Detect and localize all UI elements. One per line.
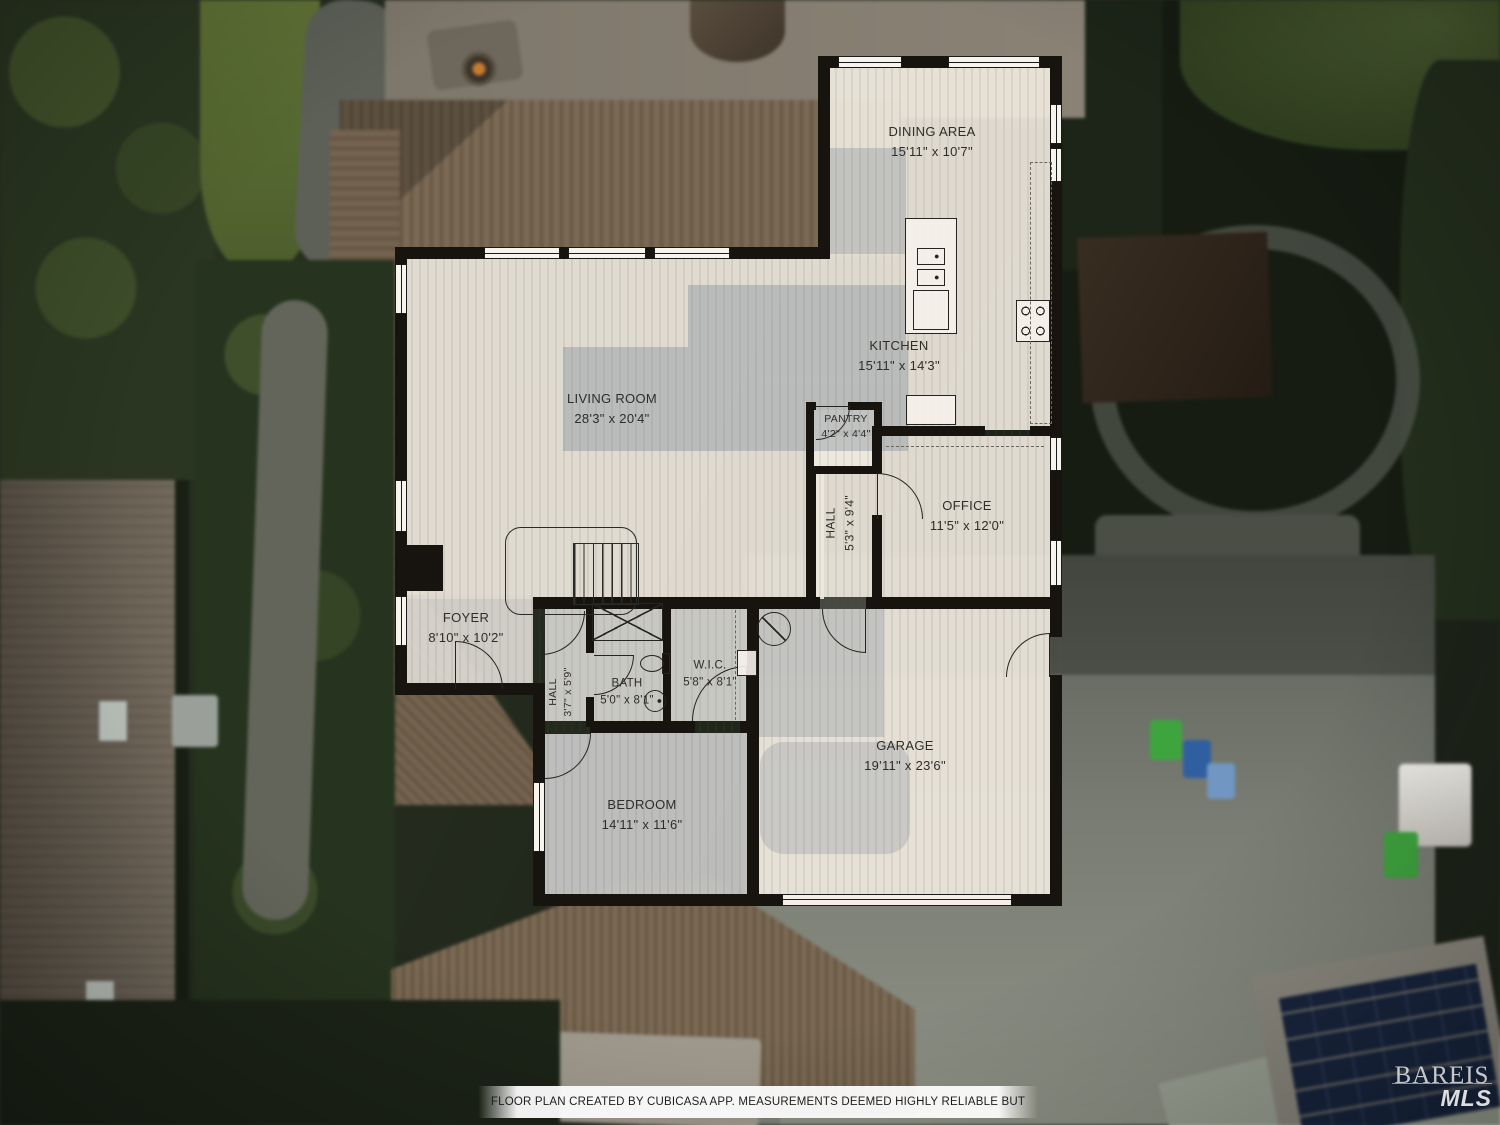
bareis-mls-watermark: BAREIS MLS <box>1392 1062 1492 1112</box>
room-dims: 5'3" x 9'4" <box>840 495 859 551</box>
wall <box>872 426 985 436</box>
wall <box>407 545 443 591</box>
window <box>395 480 407 532</box>
wall <box>806 470 816 609</box>
room-name: HALL <box>823 507 837 538</box>
disclaimer-bar: FLOOR PLAN CREATED BY CUBICASA APP. MEAS… <box>478 1086 1038 1118</box>
cabinet-dashed-line <box>1030 162 1052 424</box>
room-name: PANTRY <box>824 413 867 425</box>
shadow-dining-table <box>826 148 906 254</box>
room-name: W.I.C. <box>693 659 726 671</box>
room-name: GARAGE <box>876 738 933 753</box>
room-dims: 5'0" x 8'1" <box>600 692 654 709</box>
wall <box>586 697 594 727</box>
room-label-bedroom: BEDROOM14'11" x 11'6" <box>602 795 683 835</box>
aerial-floor-plan-image: DINING AREA15'11" x 10'7" KITCHEN15'11" … <box>0 0 1500 1125</box>
room-dims: 4'2" x 4'4" <box>821 427 870 442</box>
room-dims: 19'11" x 23'6" <box>864 756 946 776</box>
room-name: KITCHEN <box>869 338 928 353</box>
window <box>654 247 730 259</box>
window <box>1050 437 1062 471</box>
floor-plan-overlay: DINING AREA15'11" x 10'7" KITCHEN15'11" … <box>0 0 1500 1125</box>
wall <box>806 402 814 474</box>
room-label-hall: HALL5'3" x 9'4" <box>821 495 858 551</box>
room-label-living-room: LIVING ROOM28'3" x 20'4" <box>567 389 657 429</box>
island-dishwasher <box>913 290 949 330</box>
room-label-office: OFFICE11'5" x 12'0" <box>930 496 1004 536</box>
room-label-bath: BATH5'0" x 8'1" <box>600 675 654 708</box>
wall <box>590 721 695 733</box>
wall <box>533 721 545 733</box>
window <box>484 247 560 259</box>
room-dims: 15'11" x 10'7" <box>888 142 975 162</box>
room-dims: 28'3" x 20'4" <box>567 409 657 429</box>
room-label-pantry: PANTRY4'2" x 4'4" <box>821 412 870 442</box>
window <box>395 596 407 646</box>
toilet-tank <box>662 653 670 674</box>
wall <box>1050 675 1062 906</box>
wall <box>874 402 882 426</box>
room-dims: 11'5" x 12'0" <box>930 516 1004 536</box>
wall <box>866 597 1062 609</box>
garage-door <box>782 894 1012 906</box>
island-sink-2 <box>917 269 945 286</box>
window <box>838 56 902 68</box>
wall <box>872 515 882 609</box>
room-dims: 3'7" x 5'9" <box>561 667 576 716</box>
room-label-foyer: FOYER8'10" x 10'2" <box>428 608 503 648</box>
island-sink-1 <box>917 248 945 265</box>
electrical-panel-icon <box>757 612 791 646</box>
window <box>1050 540 1062 586</box>
toilet-bowl <box>640 655 664 672</box>
room-name: LIVING ROOM <box>567 391 657 406</box>
room-label-wic: W.I.C.5'8" x 8'1" <box>683 657 737 690</box>
window <box>568 247 646 259</box>
wall <box>818 56 830 259</box>
room-dims: 5'8" x 8'1" <box>683 674 737 691</box>
stair-railing <box>505 527 637 615</box>
window <box>1050 104 1062 144</box>
window <box>533 782 545 852</box>
room-name: FOYER <box>443 610 489 625</box>
room-dims: 15'11" x 14'3" <box>858 356 940 376</box>
room-label-garage: GARAGE19'11" x 23'6" <box>864 736 946 776</box>
room-label-hall-2: HALL3'7" x 5'9" <box>546 667 576 716</box>
room-label-dining-area: DINING AREA15'11" x 10'7" <box>888 122 975 162</box>
room-name: BEDROOM <box>607 797 676 812</box>
room-name: DINING AREA <box>888 124 975 139</box>
room-dims: 8'10" x 10'2" <box>428 628 503 648</box>
room-name: OFFICE <box>942 498 991 513</box>
room-name: BATH <box>611 677 642 689</box>
kitchen-counter <box>906 395 956 425</box>
window <box>395 264 407 314</box>
room-name: HALL <box>547 678 559 705</box>
room-label-kitchen: KITCHEN15'11" x 14'3" <box>858 336 940 376</box>
office-dashed-line <box>886 446 1044 447</box>
linen-closet <box>592 603 663 641</box>
electrical-box <box>737 650 757 676</box>
wall <box>747 601 759 906</box>
wall <box>806 466 882 474</box>
room-dims: 14'11" x 11'6" <box>602 815 683 835</box>
wall <box>1030 426 1062 436</box>
window <box>948 56 1040 68</box>
